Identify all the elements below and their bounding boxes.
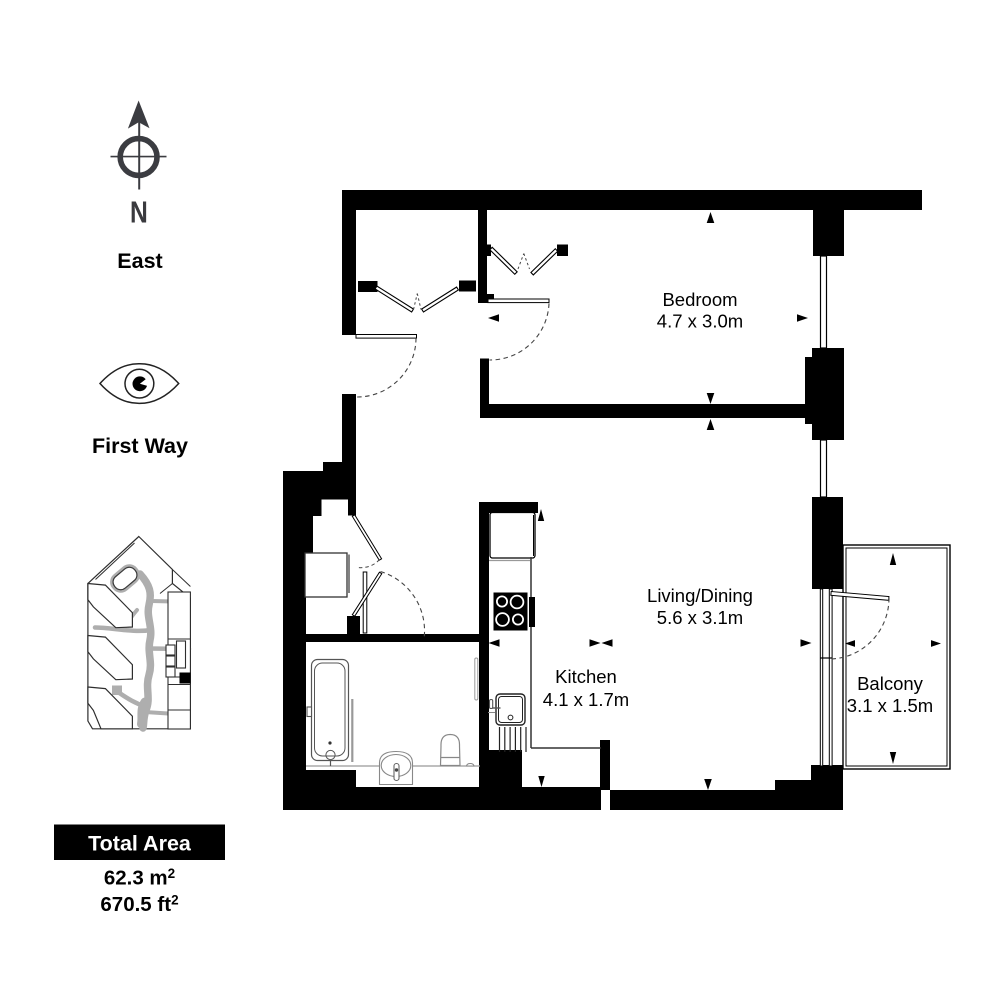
svg-text:Total Area: Total Area	[88, 832, 192, 856]
svg-text:Living/Dining: Living/Dining	[647, 585, 753, 606]
svg-text:4.1 x 1.7m: 4.1 x 1.7m	[543, 689, 629, 710]
svg-text:3.1 x 1.5m: 3.1 x 1.5m	[847, 695, 933, 716]
svg-text:4.7 x 3.0m: 4.7 x 3.0m	[657, 311, 743, 332]
svg-text:670.5 ft2: 670.5 ft2	[100, 893, 178, 917]
svg-text:First Way: First Way	[92, 434, 188, 458]
svg-text:Balcony: Balcony	[857, 673, 924, 694]
svg-text:Kitchen: Kitchen	[555, 666, 617, 687]
svg-text:East: East	[117, 249, 162, 273]
svg-text:N: N	[130, 196, 148, 230]
svg-text:5.6 x 3.1m: 5.6 x 3.1m	[657, 607, 743, 628]
svg-text:62.3 m2: 62.3 m2	[104, 866, 175, 890]
svg-text:Bedroom: Bedroom	[662, 289, 737, 310]
